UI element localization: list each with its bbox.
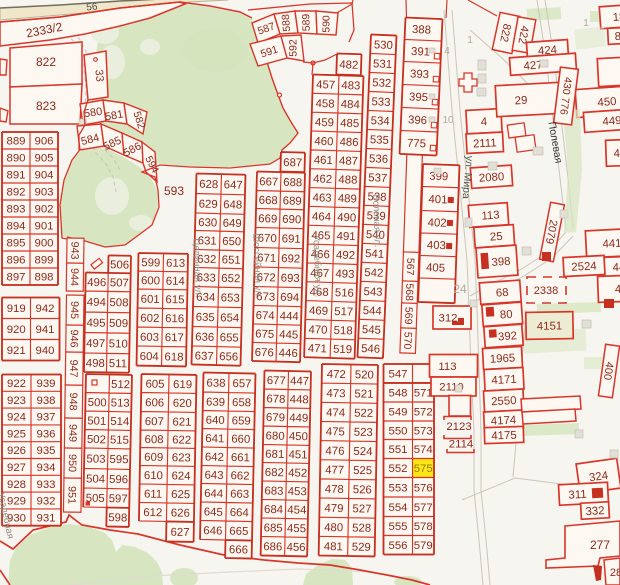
svg-text:541: 541 [365, 248, 385, 261]
svg-text:663: 663 [230, 488, 249, 500]
svg-text:456: 456 [286, 542, 305, 554]
svg-text:472: 472 [327, 369, 346, 381]
svg-text:483: 483 [341, 80, 360, 93]
svg-text:477: 477 [325, 464, 344, 476]
svg-text:525: 525 [353, 465, 372, 477]
svg-text:517: 517 [334, 306, 353, 319]
svg-text:449: 449 [289, 412, 308, 424]
svg-text:653: 653 [221, 292, 240, 304]
svg-text:687: 687 [283, 157, 302, 169]
svg-text:552: 552 [388, 463, 407, 475]
svg-text:2114: 2114 [449, 439, 474, 451]
svg-text:405: 405 [426, 262, 445, 275]
svg-text:622: 622 [172, 434, 191, 446]
svg-text:501: 501 [87, 415, 106, 427]
svg-text:604: 604 [140, 351, 159, 363]
svg-text:544: 544 [362, 305, 382, 318]
svg-text:610: 610 [144, 470, 163, 482]
svg-text:899: 899 [34, 255, 53, 267]
svg-text:611: 611 [144, 488, 162, 500]
svg-text:518: 518 [333, 325, 352, 338]
svg-text:616: 616 [165, 313, 184, 325]
svg-text:924: 924 [7, 412, 26, 424]
svg-text:526: 526 [353, 484, 372, 496]
svg-text:444: 444 [280, 311, 299, 323]
svg-text:463: 463 [312, 192, 331, 205]
svg-text:694: 694 [280, 292, 299, 304]
svg-text:464: 464 [312, 211, 331, 224]
svg-text:33: 33 [92, 69, 105, 82]
svg-text:573: 573 [414, 425, 433, 437]
svg-text:644: 644 [204, 488, 223, 500]
svg-text:522: 522 [354, 408, 373, 420]
svg-text:481: 481 [324, 541, 343, 553]
svg-text:448: 448 [290, 394, 309, 406]
svg-text:607: 607 [145, 416, 164, 428]
svg-text:935: 935 [36, 445, 55, 457]
svg-text:898: 898 [34, 272, 53, 284]
svg-text:690: 690 [282, 214, 301, 226]
svg-text:10: 10 [442, 115, 454, 126]
svg-text:449: 449 [602, 115, 620, 128]
svg-text:556: 556 [388, 540, 407, 552]
svg-text:530: 530 [374, 39, 394, 52]
svg-text:401: 401 [428, 194, 447, 207]
svg-text:569: 569 [402, 307, 415, 325]
svg-text:950: 950 [66, 454, 78, 472]
svg-text:536: 536 [369, 153, 389, 166]
svg-text:529: 529 [352, 542, 371, 554]
svg-text:551: 551 [388, 444, 407, 456]
svg-text:664: 664 [230, 507, 249, 519]
svg-text:80: 80 [500, 309, 513, 322]
svg-text:906: 906 [34, 136, 53, 148]
svg-text:488: 488 [338, 174, 357, 187]
svg-text:476: 476 [325, 445, 344, 457]
svg-text:603: 603 [140, 332, 159, 344]
svg-text:403: 403 [427, 240, 446, 253]
svg-text:113: 113 [438, 361, 456, 373]
svg-text:608: 608 [144, 434, 163, 446]
svg-text:548: 548 [388, 388, 407, 400]
svg-text:601: 601 [141, 294, 160, 306]
svg-text:941: 941 [35, 324, 54, 336]
svg-text:490: 490 [337, 212, 356, 225]
svg-text:577: 577 [414, 502, 433, 514]
svg-text:946: 946 [68, 330, 80, 348]
svg-text:643: 643 [204, 470, 223, 482]
svg-text:590: 590 [321, 15, 333, 33]
svg-text:597: 597 [109, 493, 128, 505]
svg-text:474: 474 [326, 407, 345, 419]
svg-text:685: 685 [264, 522, 283, 534]
svg-text:84: 84 [614, 30, 620, 43]
svg-text:68: 68 [496, 287, 509, 300]
svg-text:393: 393 [410, 68, 430, 81]
svg-text:567: 567 [404, 258, 417, 276]
svg-text:578: 578 [414, 521, 433, 533]
svg-text:903: 903 [34, 187, 53, 199]
svg-text:4171: 4171 [491, 374, 517, 387]
svg-text:675: 675 [255, 328, 274, 340]
svg-text:649: 649 [223, 218, 242, 230]
svg-text:4: 4 [615, 284, 620, 296]
svg-text:511: 511 [109, 358, 127, 370]
svg-text:29: 29 [514, 95, 527, 108]
svg-text:534: 534 [370, 115, 390, 128]
svg-text:576: 576 [414, 482, 433, 494]
svg-text:Усадебная ул.: Усадебная ул. [310, 234, 323, 297]
svg-text:450: 450 [597, 96, 617, 109]
svg-text:546: 546 [361, 343, 381, 356]
svg-text:514: 514 [110, 416, 129, 428]
svg-text:624: 624 [171, 470, 190, 482]
svg-text:775: 775 [407, 138, 427, 151]
svg-text:508: 508 [109, 297, 128, 309]
svg-text:332: 332 [585, 505, 605, 518]
svg-text:896: 896 [6, 255, 25, 267]
svg-text:677: 677 [267, 375, 286, 387]
svg-text:509: 509 [109, 318, 128, 330]
svg-text:473: 473 [326, 388, 345, 400]
svg-text:537: 537 [368, 172, 388, 185]
svg-text:2550: 2550 [491, 395, 517, 408]
svg-text:595: 595 [109, 454, 128, 466]
svg-text:612: 612 [143, 507, 162, 519]
svg-text:683: 683 [264, 485, 283, 497]
svg-text:395: 395 [409, 91, 429, 104]
svg-text:920: 920 [7, 324, 26, 336]
svg-text:902: 902 [34, 204, 53, 216]
svg-text:945: 945 [68, 301, 80, 319]
svg-text:527: 527 [352, 503, 371, 515]
svg-text:625: 625 [171, 489, 190, 501]
svg-text:944: 944 [68, 268, 80, 286]
svg-text:609: 609 [144, 452, 163, 464]
svg-text:543: 543 [363, 286, 383, 299]
svg-text:646: 646 [203, 525, 222, 537]
svg-text:894: 894 [6, 221, 25, 233]
svg-text:927: 927 [7, 462, 26, 474]
svg-text:470: 470 [308, 324, 327, 337]
svg-text:25: 25 [490, 231, 503, 244]
svg-text:535: 535 [370, 134, 390, 147]
svg-text:113: 113 [481, 209, 500, 222]
svg-text:554: 554 [388, 502, 407, 514]
svg-text:623: 623 [172, 452, 191, 464]
svg-text:Вольная ул.: Вольная ул. [370, 194, 383, 247]
svg-text:400: 400 [601, 361, 615, 381]
svg-text:931: 931 [36, 512, 55, 524]
svg-text:615: 615 [165, 294, 184, 306]
svg-text:926: 926 [7, 445, 26, 457]
svg-text:24: 24 [453, 282, 467, 296]
svg-text:460: 460 [314, 136, 333, 149]
svg-text:44: 44 [612, 262, 620, 274]
svg-text:661: 661 [231, 452, 250, 464]
svg-text:485: 485 [340, 118, 359, 131]
svg-text:897: 897 [6, 272, 25, 284]
svg-text:600: 600 [141, 275, 160, 287]
svg-text:482: 482 [339, 59, 358, 72]
svg-text:398: 398 [491, 256, 511, 269]
svg-text:655: 655 [220, 332, 239, 344]
svg-text:502: 502 [87, 434, 106, 446]
svg-text:516: 516 [335, 287, 354, 300]
svg-text:665: 665 [229, 526, 248, 538]
svg-text:682: 682 [265, 467, 284, 479]
svg-text:668: 668 [259, 195, 278, 207]
svg-text:693: 693 [281, 273, 300, 285]
svg-text:4: 4 [481, 116, 488, 128]
svg-text:489: 489 [338, 193, 357, 206]
svg-text:2123: 2123 [446, 421, 471, 433]
svg-text:642: 642 [205, 451, 224, 463]
svg-text:895: 895 [6, 238, 25, 250]
svg-text:Шоссейная ул.: Шоссейная ул. [250, 233, 263, 298]
svg-text:28: 28 [610, 567, 620, 579]
svg-text:637: 637 [195, 350, 214, 362]
svg-text:580: 580 [83, 106, 103, 120]
svg-text:500: 500 [88, 397, 107, 409]
svg-text:934: 934 [36, 462, 55, 474]
svg-text:392: 392 [498, 330, 518, 343]
svg-text:588: 588 [280, 14, 293, 33]
svg-text:636: 636 [195, 331, 214, 343]
svg-text:923: 923 [7, 395, 26, 407]
svg-text:1965: 1965 [490, 352, 516, 365]
svg-text:678: 678 [266, 393, 285, 405]
svg-text:457: 457 [316, 79, 335, 92]
svg-text:901: 901 [34, 221, 53, 233]
svg-text:452: 452 [288, 467, 307, 479]
svg-text:568: 568 [403, 283, 416, 301]
svg-text:596: 596 [109, 474, 128, 486]
svg-text:311: 311 [568, 489, 587, 502]
svg-text:458: 458 [315, 98, 334, 111]
svg-text:18: 18 [612, 11, 620, 24]
svg-text:688: 688 [283, 177, 302, 189]
svg-text:1: 1 [467, 35, 473, 46]
svg-text:542: 542 [364, 267, 384, 280]
svg-text:486: 486 [339, 136, 358, 149]
svg-text:494: 494 [87, 297, 106, 309]
svg-text:496: 496 [87, 277, 106, 289]
svg-text:686: 686 [263, 541, 282, 553]
svg-text:451: 451 [288, 449, 307, 461]
svg-text:2338: 2338 [534, 285, 558, 297]
svg-text:613: 613 [166, 258, 185, 270]
svg-text:650: 650 [222, 236, 241, 248]
svg-text:4175: 4175 [491, 430, 517, 443]
svg-text:889: 889 [6, 136, 25, 148]
svg-text:947: 947 [67, 360, 79, 378]
svg-text:579: 579 [414, 540, 433, 552]
svg-text:510: 510 [109, 338, 128, 350]
svg-text:937: 937 [36, 412, 55, 424]
svg-text:484: 484 [341, 99, 360, 112]
svg-text:641: 641 [205, 433, 224, 445]
svg-text:524: 524 [353, 446, 372, 458]
svg-text:932: 932 [36, 496, 55, 508]
svg-text:575: 575 [414, 463, 433, 475]
svg-text:471: 471 [308, 343, 327, 356]
svg-text:44: 44 [613, 148, 620, 160]
svg-text:652: 652 [221, 273, 240, 285]
svg-text:638: 638 [206, 377, 225, 389]
svg-text:531: 531 [373, 58, 393, 71]
svg-text:547: 547 [388, 369, 407, 381]
svg-text:629: 629 [199, 198, 218, 210]
svg-text:905: 905 [34, 153, 53, 165]
svg-text:469: 469 [309, 305, 328, 318]
svg-text:506: 506 [110, 259, 129, 271]
svg-text:892: 892 [6, 187, 25, 199]
svg-text:666: 666 [229, 544, 248, 556]
svg-text:480: 480 [324, 522, 343, 534]
svg-text:497: 497 [86, 338, 105, 350]
svg-text:943: 943 [68, 242, 80, 260]
svg-text:936: 936 [36, 428, 55, 440]
svg-text:639: 639 [206, 396, 225, 408]
svg-text:948: 948 [67, 393, 79, 411]
svg-text:2111: 2111 [473, 137, 497, 150]
svg-text:617: 617 [165, 332, 184, 344]
svg-text:599: 599 [141, 257, 160, 269]
svg-text:949: 949 [66, 424, 78, 442]
svg-text:691: 691 [282, 233, 301, 245]
svg-text:492: 492 [336, 250, 355, 263]
svg-text:545: 545 [362, 324, 382, 337]
svg-text:4151: 4151 [537, 320, 563, 332]
svg-text:891: 891 [6, 170, 25, 182]
svg-text:396: 396 [408, 114, 428, 127]
svg-text:570: 570 [401, 332, 414, 350]
svg-text:478: 478 [325, 484, 344, 496]
svg-text:533: 533 [371, 96, 391, 109]
svg-text:904: 904 [34, 170, 53, 182]
svg-text:450: 450 [289, 431, 308, 443]
svg-text:628: 628 [199, 179, 218, 191]
svg-text:549: 549 [388, 407, 407, 419]
svg-text:487: 487 [339, 155, 358, 168]
svg-text:503: 503 [86, 453, 105, 465]
svg-text:498: 498 [86, 358, 105, 370]
svg-text:679: 679 [266, 412, 285, 424]
svg-text:445: 445 [279, 329, 298, 341]
svg-text:689: 689 [283, 195, 302, 207]
svg-text:620: 620 [173, 398, 192, 410]
svg-text:621: 621 [172, 416, 191, 428]
svg-text:893: 893 [6, 204, 25, 216]
svg-text:823: 823 [36, 99, 56, 113]
svg-text:462: 462 [313, 173, 332, 186]
svg-text:479: 479 [324, 503, 343, 515]
svg-text:Целинная ул.: Целинная ул. [190, 238, 203, 297]
svg-text:513: 513 [111, 397, 130, 409]
svg-text:388: 388 [412, 24, 432, 37]
svg-text:572: 572 [414, 407, 433, 419]
svg-text:475: 475 [326, 426, 345, 438]
svg-text:277: 277 [590, 538, 610, 552]
svg-text:598: 598 [108, 512, 127, 524]
svg-text:669: 669 [258, 213, 277, 225]
svg-text:493: 493 [335, 268, 354, 281]
svg-text:4174: 4174 [491, 414, 517, 427]
svg-text:391: 391 [411, 46, 431, 59]
svg-text:571: 571 [414, 388, 433, 400]
svg-text:940: 940 [35, 345, 54, 357]
svg-text:461: 461 [314, 154, 333, 167]
svg-text:550: 550 [388, 425, 407, 437]
svg-text:660: 660 [231, 433, 250, 445]
svg-text:491: 491 [336, 231, 355, 244]
svg-text:2080: 2080 [479, 171, 505, 185]
svg-text:662: 662 [230, 470, 249, 482]
svg-text:651: 651 [222, 254, 241, 266]
svg-text:495: 495 [86, 317, 105, 329]
svg-text:618: 618 [164, 351, 183, 363]
svg-text:648: 648 [223, 199, 242, 211]
svg-text:574: 574 [414, 444, 433, 456]
svg-text:532: 532 [372, 77, 392, 90]
svg-text:938: 938 [36, 395, 55, 407]
svg-text:602: 602 [140, 313, 159, 325]
svg-text:676: 676 [255, 347, 274, 359]
svg-text:606: 606 [145, 397, 164, 409]
svg-text:528: 528 [352, 522, 371, 534]
svg-text:684: 684 [264, 504, 283, 516]
svg-text:446: 446 [279, 348, 298, 360]
svg-text:592: 592 [287, 39, 299, 57]
svg-text:523: 523 [354, 427, 373, 439]
svg-text:605: 605 [145, 378, 164, 390]
svg-text:928: 928 [7, 479, 26, 491]
svg-text:681: 681 [265, 449, 284, 461]
svg-text:627: 627 [170, 527, 189, 539]
svg-text:919: 919 [7, 303, 26, 315]
svg-text:900: 900 [34, 238, 53, 250]
svg-text:645: 645 [204, 506, 223, 518]
svg-text:822: 822 [36, 55, 56, 69]
svg-text:674: 674 [256, 310, 275, 322]
svg-text:921: 921 [7, 345, 26, 357]
svg-text:507: 507 [110, 277, 129, 289]
svg-text:951: 951 [65, 486, 77, 504]
svg-text:890: 890 [6, 153, 25, 165]
svg-text:521: 521 [354, 388, 373, 400]
svg-text:640: 640 [206, 415, 225, 427]
svg-text:647: 647 [224, 179, 243, 191]
svg-text:630: 630 [198, 217, 217, 229]
svg-text:2524: 2524 [571, 260, 597, 273]
svg-text:939: 939 [36, 378, 55, 390]
svg-text:555: 555 [388, 521, 407, 533]
svg-text:942: 942 [35, 303, 54, 315]
svg-text:512: 512 [111, 379, 130, 391]
svg-text:402: 402 [427, 217, 446, 230]
svg-text:441: 441 [602, 238, 620, 251]
svg-text:4: 4 [444, 46, 450, 57]
svg-text:658: 658 [232, 397, 251, 409]
svg-text:933: 933 [36, 479, 55, 491]
svg-text:614: 614 [166, 276, 185, 288]
svg-text:504: 504 [86, 473, 105, 485]
svg-text:455: 455 [287, 523, 306, 535]
svg-text:593: 593 [164, 184, 184, 198]
svg-text:454: 454 [287, 504, 306, 516]
svg-text:626: 626 [171, 507, 190, 519]
